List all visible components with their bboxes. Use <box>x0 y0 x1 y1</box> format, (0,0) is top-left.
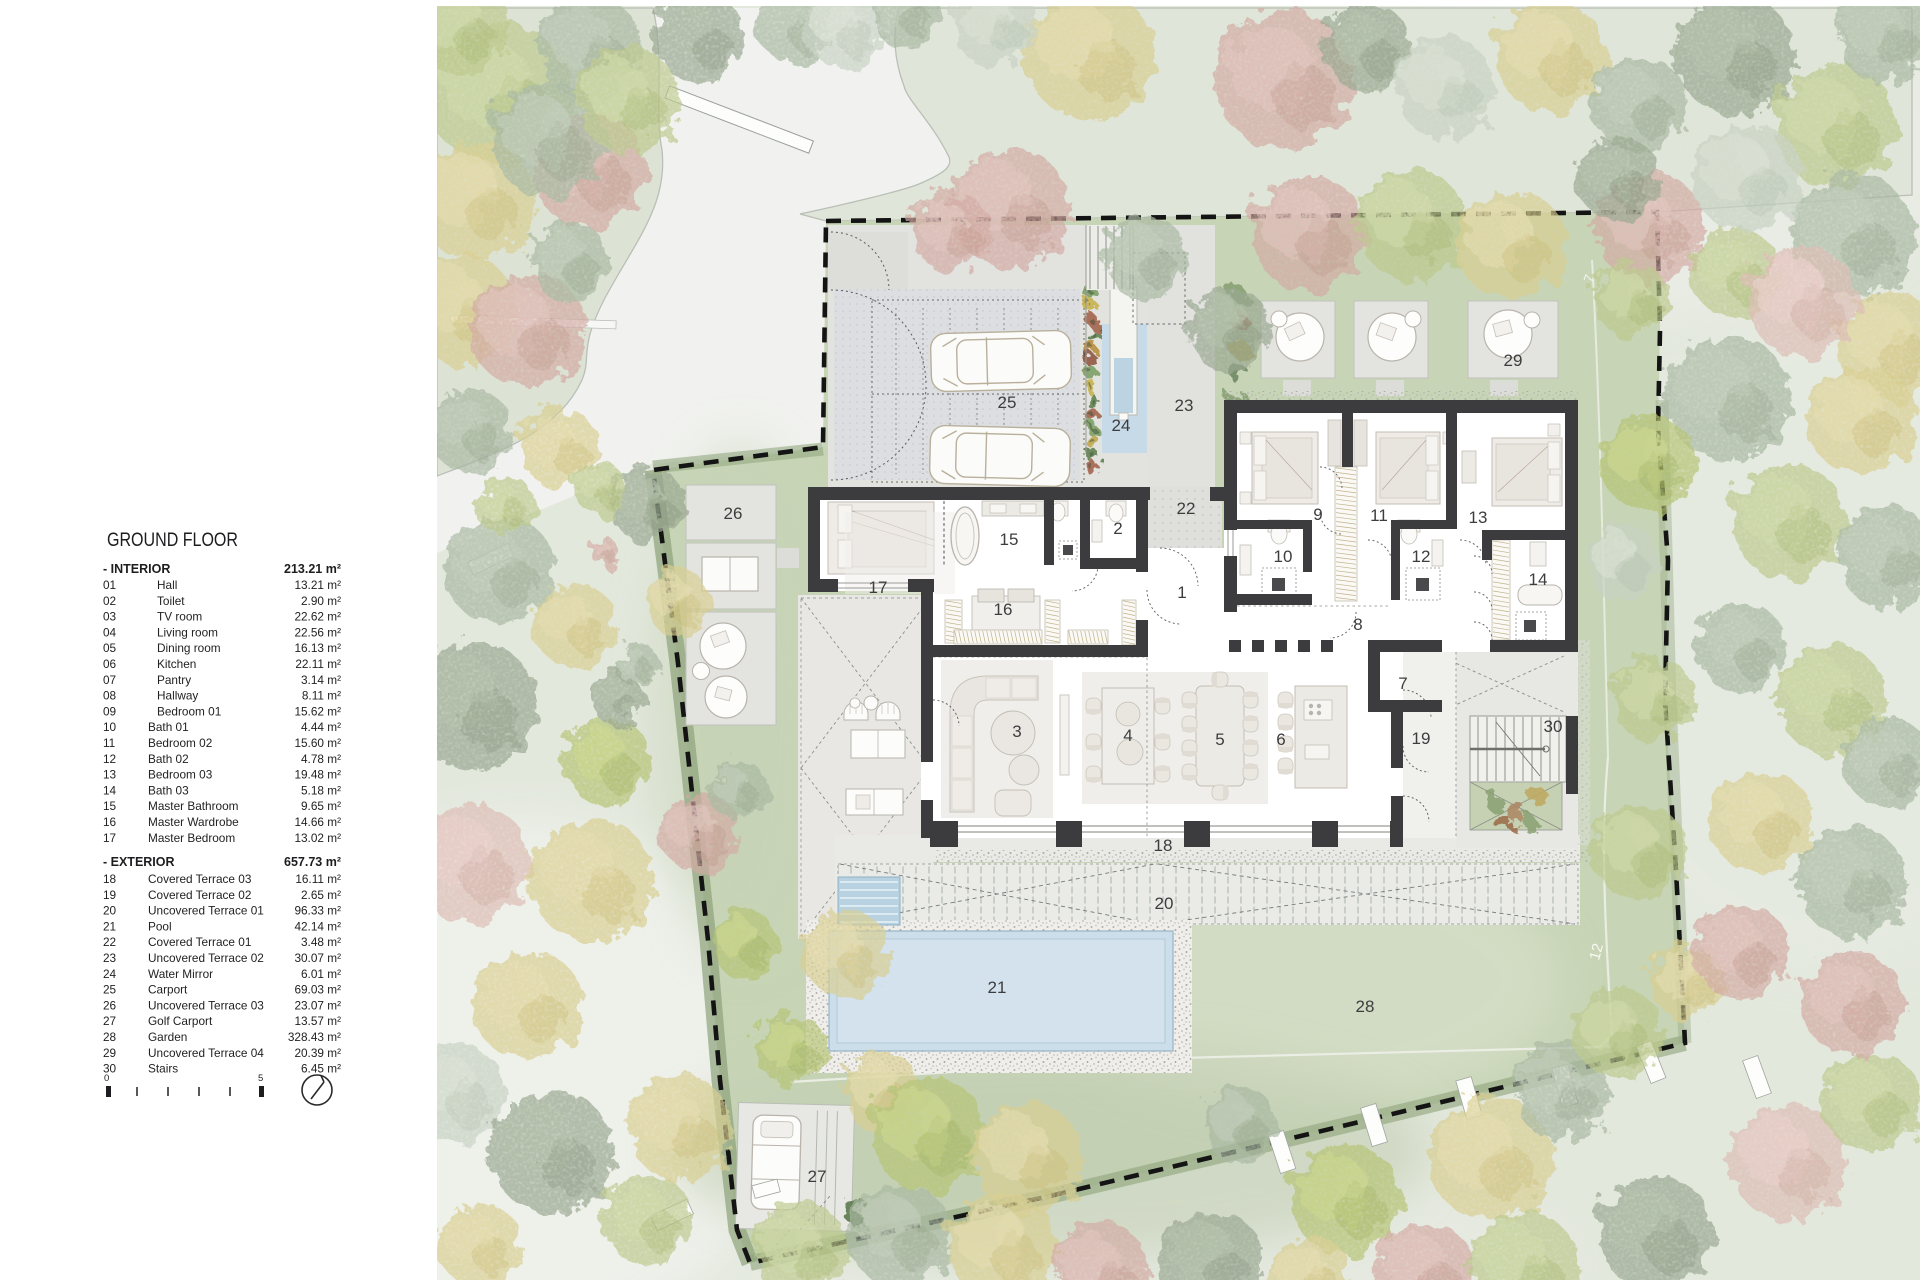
svg-text:Dining room: Dining room <box>157 641 221 655</box>
svg-text:30: 30 <box>1544 717 1563 736</box>
svg-text:20.39 m²: 20.39 m² <box>294 1046 341 1060</box>
svg-text:Garden: Garden <box>148 1030 187 1044</box>
svg-text:Stairs: Stairs <box>148 1062 178 1076</box>
svg-text:Master Bathroom: Master Bathroom <box>148 799 239 813</box>
svg-text:Living room: Living room <box>157 625 218 639</box>
svg-text:2.90 m²: 2.90 m² <box>301 594 341 608</box>
svg-text:Bath 02: Bath 02 <box>148 752 189 766</box>
svg-text:10: 10 <box>1274 547 1293 566</box>
svg-text:24: 24 <box>1112 416 1131 435</box>
svg-text:14: 14 <box>103 783 117 797</box>
svg-text:22: 22 <box>1177 499 1196 518</box>
svg-text:Kitchen: Kitchen <box>157 657 196 671</box>
svg-text:Covered Terrace 01: Covered Terrace 01 <box>148 935 251 949</box>
svg-text:328.43 m²: 328.43 m² <box>288 1030 341 1044</box>
svg-text:Uncovered Terrace 02: Uncovered Terrace 02 <box>148 951 264 965</box>
svg-text:16: 16 <box>994 600 1013 619</box>
svg-text:15.62 m²: 15.62 m² <box>294 704 341 718</box>
svg-text:Bath 03: Bath 03 <box>148 783 189 797</box>
svg-text:Master Wardrobe: Master Wardrobe <box>148 815 239 829</box>
svg-text:13.57 m²: 13.57 m² <box>294 1014 341 1028</box>
svg-text:9: 9 <box>1313 505 1322 524</box>
svg-text:05: 05 <box>103 641 117 655</box>
svg-text:22.56 m²: 22.56 m² <box>294 625 341 639</box>
svg-text:4.44 m²: 4.44 m² <box>301 720 341 734</box>
svg-text:04: 04 <box>103 625 117 639</box>
svg-text:16.11 m²: 16.11 m² <box>295 872 341 886</box>
svg-text:Covered Terrace 03: Covered Terrace 03 <box>148 872 252 886</box>
svg-text:12: 12 <box>1412 547 1431 566</box>
svg-text:Golf Carport: Golf Carport <box>148 1014 213 1028</box>
svg-text:01: 01 <box>103 578 116 592</box>
svg-text:27: 27 <box>103 1014 116 1028</box>
svg-text:- INTERIOR: - INTERIOR <box>103 562 170 576</box>
svg-text:20: 20 <box>1155 894 1174 913</box>
svg-text:Master Bedroom: Master Bedroom <box>148 831 235 845</box>
svg-text:14: 14 <box>1529 570 1548 589</box>
svg-text:8.11 m²: 8.11 m² <box>302 689 341 703</box>
svg-text:13: 13 <box>1469 508 1488 527</box>
svg-text:2: 2 <box>1113 519 1122 538</box>
svg-text:15.60 m²: 15.60 m² <box>294 736 341 750</box>
svg-text:18: 18 <box>103 872 117 886</box>
svg-text:4.78 m²: 4.78 m² <box>301 752 341 766</box>
svg-text:09: 09 <box>103 704 116 718</box>
svg-text:2.65 m²: 2.65 m² <box>301 888 341 902</box>
svg-text:22: 22 <box>103 935 116 949</box>
svg-text:96.33 m²: 96.33 m² <box>294 904 341 918</box>
svg-text:Pantry: Pantry <box>157 673 191 687</box>
svg-text:27: 27 <box>808 1167 827 1186</box>
svg-text:25: 25 <box>998 393 1017 412</box>
svg-text:23: 23 <box>1175 396 1194 415</box>
svg-text:26: 26 <box>724 504 743 523</box>
svg-text:6.45 m²: 6.45 m² <box>301 1062 341 1076</box>
svg-text:22.62 m²: 22.62 m² <box>294 610 341 624</box>
svg-text:Bath 01: Bath 01 <box>148 720 189 734</box>
svg-text:5.18 m²: 5.18 m² <box>301 783 341 797</box>
svg-text:15: 15 <box>103 799 117 813</box>
svg-text:10: 10 <box>103 720 117 734</box>
svg-text:Toilet: Toilet <box>157 594 185 608</box>
svg-text:14.66 m²: 14.66 m² <box>294 815 341 829</box>
svg-text:23: 23 <box>103 951 117 965</box>
svg-text:- EXTERIOR: - EXTERIOR <box>103 855 175 869</box>
svg-text:3.48 m²: 3.48 m² <box>301 935 341 949</box>
svg-text:06: 06 <box>103 657 117 671</box>
svg-text:21: 21 <box>988 978 1007 997</box>
svg-text:6.01 m²: 6.01 m² <box>301 967 341 981</box>
svg-text:Water Mirror: Water Mirror <box>148 967 213 981</box>
svg-text:29: 29 <box>103 1046 116 1060</box>
svg-text:Bedroom 02: Bedroom 02 <box>148 736 212 750</box>
svg-text:11: 11 <box>1370 506 1388 525</box>
svg-text:657.73 m²: 657.73 m² <box>284 855 341 869</box>
svg-text:Carport: Carport <box>148 983 188 997</box>
svg-text:15: 15 <box>1000 530 1019 549</box>
svg-text:Uncovered Terrace 03: Uncovered Terrace 03 <box>148 998 264 1012</box>
svg-text:42.14 m²: 42.14 m² <box>294 919 341 933</box>
svg-text:28: 28 <box>103 1030 117 1044</box>
svg-text:30.07 m²: 30.07 m² <box>294 951 341 965</box>
svg-text:13.21 m²: 13.21 m² <box>294 578 341 592</box>
svg-text:13: 13 <box>103 768 117 782</box>
svg-text:Covered Terrace 02: Covered Terrace 02 <box>148 888 251 902</box>
svg-text:08: 08 <box>103 689 117 703</box>
svg-text:02: 02 <box>103 594 116 608</box>
svg-text:69.03 m²: 69.03 m² <box>294 983 341 997</box>
svg-text:25: 25 <box>103 983 117 997</box>
svg-text:19: 19 <box>103 888 116 902</box>
svg-text:Uncovered Terrace 01: Uncovered Terrace 01 <box>148 904 264 918</box>
svg-text:8: 8 <box>1353 615 1362 634</box>
svg-text:Hall: Hall <box>157 578 177 592</box>
svg-text:5: 5 <box>258 1073 263 1084</box>
svg-text:7: 7 <box>1398 674 1407 693</box>
svg-text:19.48 m²: 19.48 m² <box>294 768 341 782</box>
svg-text:0: 0 <box>104 1073 109 1084</box>
svg-text:16: 16 <box>103 815 117 829</box>
svg-text:213.21 m²: 213.21 m² <box>284 562 341 576</box>
svg-text:17: 17 <box>869 578 888 597</box>
svg-text:12: 12 <box>103 752 116 766</box>
svg-text:3.14 m²: 3.14 m² <box>301 673 341 687</box>
svg-text:5: 5 <box>1215 730 1224 749</box>
svg-text:07: 07 <box>103 673 116 687</box>
svg-text:Bedroom 01: Bedroom 01 <box>157 704 221 718</box>
svg-text:24: 24 <box>103 967 117 981</box>
svg-text:13.02 m²: 13.02 m² <box>294 831 341 845</box>
svg-text:TV room: TV room <box>157 610 202 624</box>
svg-text:Pool: Pool <box>148 919 172 933</box>
svg-text:11: 11 <box>103 736 115 750</box>
svg-text:28: 28 <box>1356 997 1375 1016</box>
svg-text:1: 1 <box>1177 583 1186 602</box>
svg-text:Bedroom 03: Bedroom 03 <box>148 768 213 782</box>
svg-text:22.11 m²: 22.11 m² <box>295 657 341 671</box>
svg-text:4: 4 <box>1123 726 1132 745</box>
svg-text:17: 17 <box>103 831 116 845</box>
svg-text:03: 03 <box>103 610 117 624</box>
svg-text:20: 20 <box>103 904 117 918</box>
svg-text:19: 19 <box>1412 729 1431 748</box>
svg-text:3: 3 <box>1012 722 1021 741</box>
svg-text:Hallway: Hallway <box>157 689 198 703</box>
svg-text:6: 6 <box>1276 730 1285 749</box>
svg-text:21: 21 <box>103 919 116 933</box>
svg-text:23.07 m²: 23.07 m² <box>294 998 341 1012</box>
svg-text:26: 26 <box>103 998 117 1012</box>
svg-text:16.13 m²: 16.13 m² <box>294 641 341 655</box>
svg-text:9.65 m²: 9.65 m² <box>301 799 341 813</box>
svg-text:GROUND FLOOR: GROUND FLOOR <box>107 529 238 551</box>
svg-text:Uncovered Terrace 04: Uncovered Terrace 04 <box>148 1046 264 1060</box>
svg-text:18: 18 <box>1154 836 1173 855</box>
svg-text:29: 29 <box>1504 351 1523 370</box>
